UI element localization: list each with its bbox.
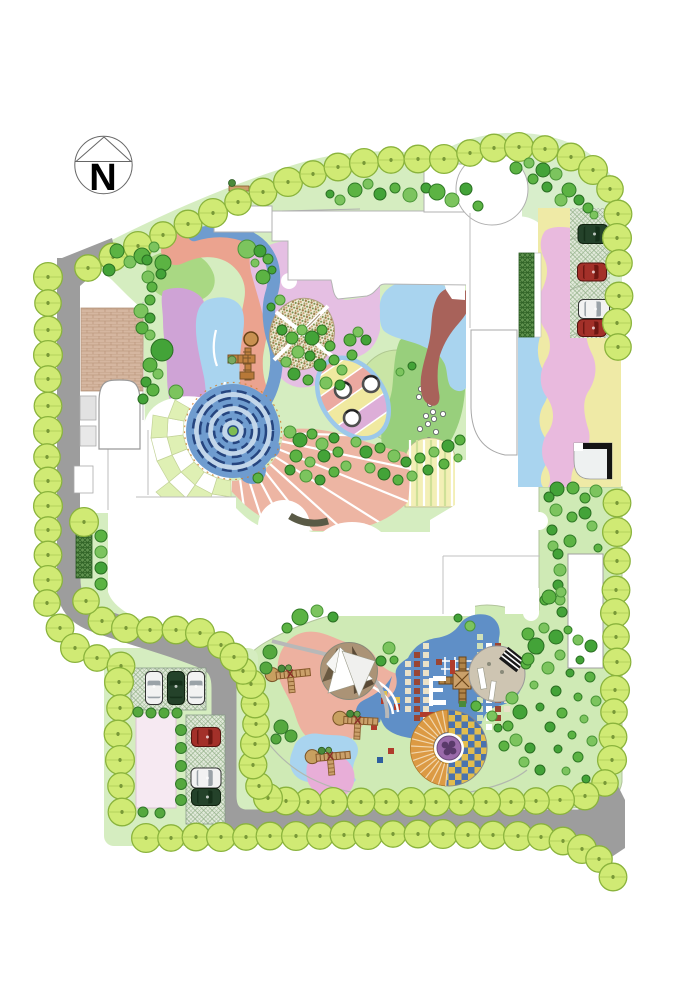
svg-text:N: N — [89, 157, 116, 199]
